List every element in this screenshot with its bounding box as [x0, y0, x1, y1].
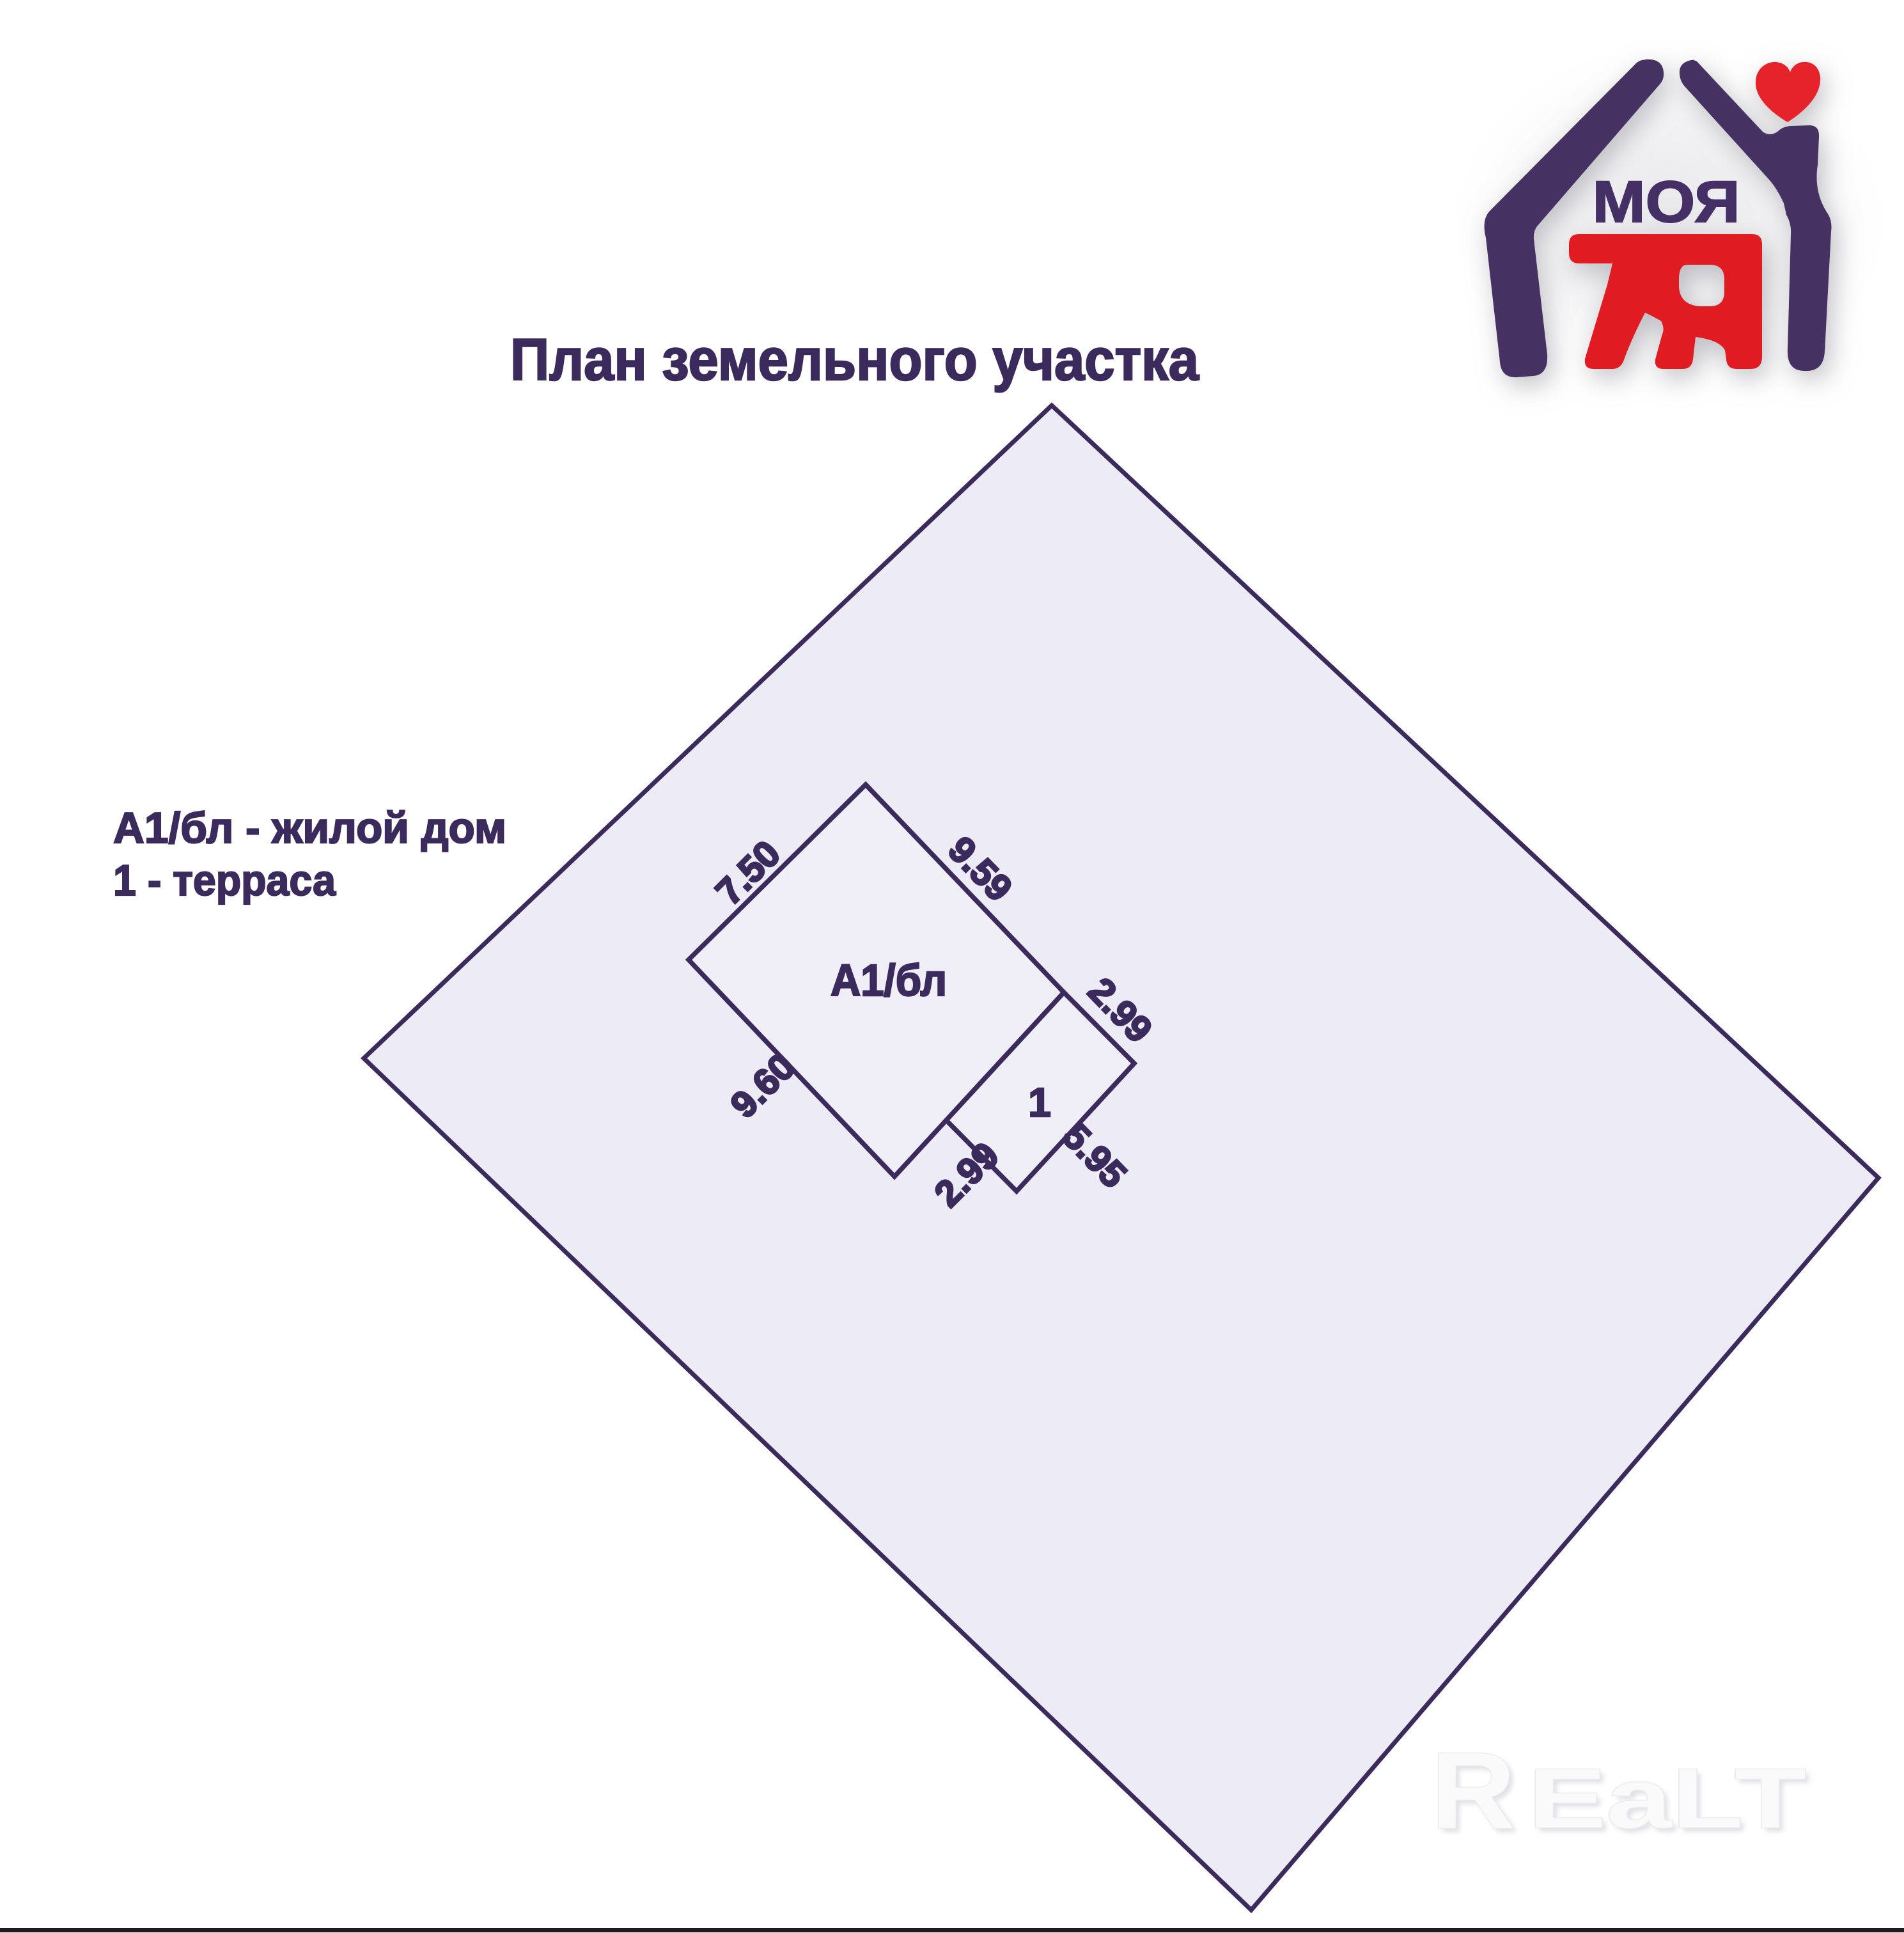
svg-text:План земельного участка: План земельного участка: [510, 327, 1199, 393]
svg-text:1: 1: [1028, 1079, 1051, 1125]
svg-text:EaLT: EaLT: [1528, 1751, 1806, 1845]
svg-text:А1/бл - жилой дом: А1/бл - жилой дом: [113, 804, 506, 852]
svg-text:R: R: [1431, 1730, 1515, 1852]
svg-text:МОЯ: МОЯ: [1593, 169, 1740, 235]
svg-text:1 - терраса: 1 - терраса: [113, 856, 336, 905]
svg-text:А1/бл: А1/бл: [831, 955, 947, 1005]
